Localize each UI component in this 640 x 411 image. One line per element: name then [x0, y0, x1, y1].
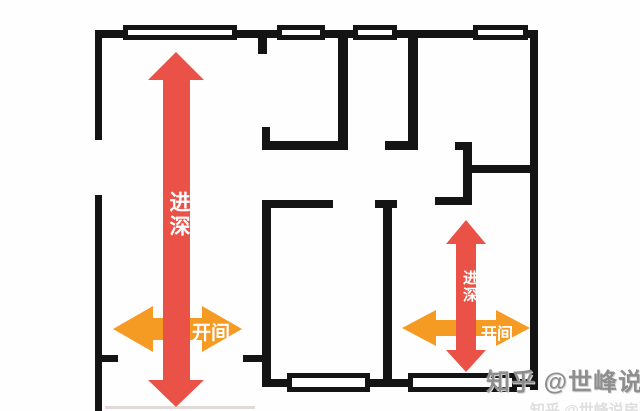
bay-label-left: 开间 [192, 318, 230, 345]
wall-balcony-stub-right [243, 355, 271, 362]
wall-bay2-foot [385, 141, 418, 150]
window-bottom-1 [287, 373, 370, 392]
arrow-left-icon [402, 310, 436, 346]
wall-stub-below-top [258, 38, 267, 54]
depth-label-right: 进深 [455, 270, 477, 304]
wall-right [530, 30, 538, 390]
wall-left-upper [95, 30, 102, 140]
window-top-1 [123, 25, 237, 40]
floor-plan-diagram: 开间 进深 开间 进深 知乎 @世峰说房 知乎 @世峰说房 [0, 0, 640, 411]
window-top-2 [277, 25, 325, 40]
wall-bay1-stub [262, 127, 270, 150]
wall-middle-left [262, 200, 333, 208]
wall-bay2-left [408, 38, 418, 150]
arrow-up-icon [148, 52, 204, 80]
arrow-down-icon [446, 350, 486, 372]
wall-divider-right [383, 200, 392, 379]
arrow-up-icon [446, 220, 486, 244]
wall-left-lower [95, 195, 102, 411]
wall-shaft-vertical [463, 142, 472, 205]
watermark-ghost: 知乎 @世峰说房 [530, 399, 639, 411]
wall-bay1-right [338, 38, 348, 150]
watermark: 知乎 @世峰说房 [486, 362, 640, 397]
wall-bay1-bottom [262, 141, 348, 150]
bay-label-right: 开间 [481, 320, 513, 344]
arrow-down-icon [148, 380, 204, 407]
wall-middle-right [435, 197, 472, 205]
wall-balcony-stub-left [95, 355, 118, 362]
window-top-3 [353, 25, 397, 40]
depth-label-left: 进深 [164, 191, 189, 239]
window-top-4 [473, 25, 528, 40]
arrow-left-icon [113, 306, 153, 352]
wall-kitchen [472, 165, 533, 173]
